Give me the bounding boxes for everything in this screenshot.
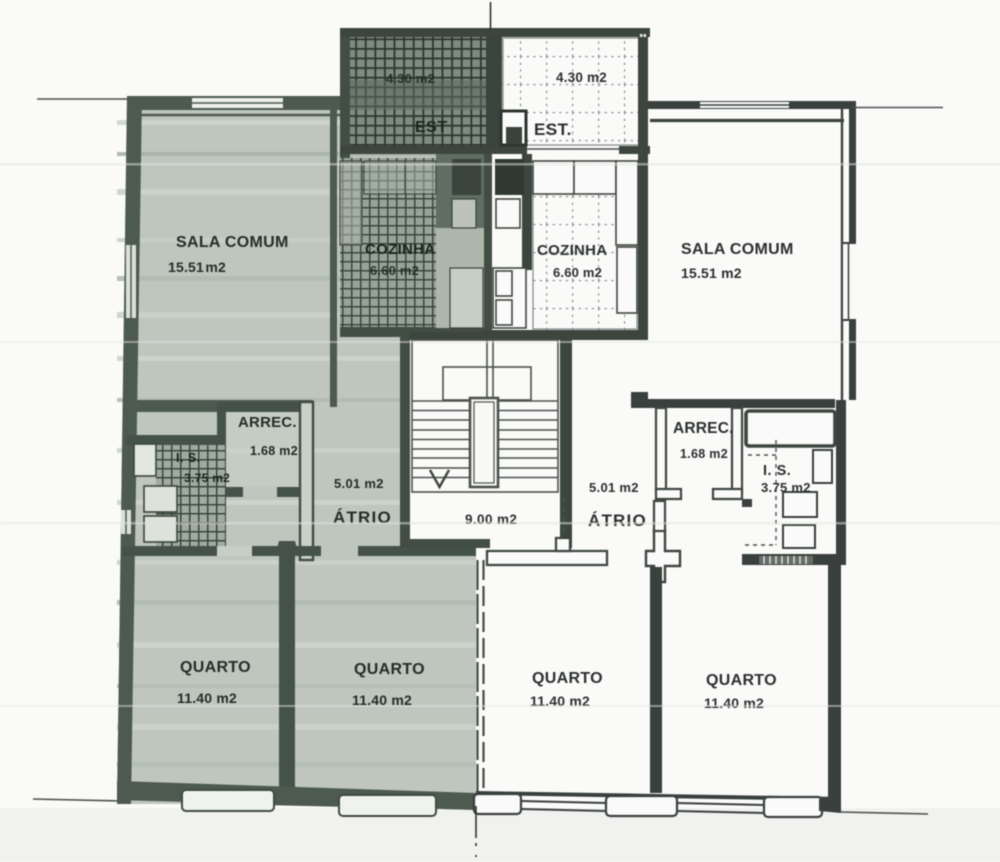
svg-text:EST.: EST. xyxy=(534,120,572,139)
svg-text:I. S.: I. S. xyxy=(763,463,791,479)
svg-text:ARREC.: ARREC. xyxy=(238,414,297,431)
svg-text:5.01 m2: 5.01 m2 xyxy=(589,480,639,495)
svg-text:EST: EST xyxy=(415,119,448,136)
svg-text:11.40 m2: 11.40 m2 xyxy=(704,695,764,711)
svg-text:9.00 m2: 9.00 m2 xyxy=(465,512,517,527)
svg-text:4.30 m2: 4.30 m2 xyxy=(386,71,435,86)
svg-text:QUARTO: QUARTO xyxy=(354,661,425,678)
svg-text:3.75 m2: 3.75 m2 xyxy=(761,480,811,495)
svg-text:COZINHA: COZINHA xyxy=(365,241,435,258)
svg-text:3.75 m2: 3.75 m2 xyxy=(184,471,230,485)
svg-text:6.60 m2: 6.60 m2 xyxy=(553,265,602,280)
svg-text:SALA COMUM: SALA COMUM xyxy=(681,241,794,258)
svg-text:ÁTRIO: ÁTRIO xyxy=(588,511,647,530)
svg-text:COZINHA: COZINHA xyxy=(537,242,607,259)
svg-text:SALA COMUM: SALA COMUM xyxy=(176,234,289,251)
svg-text:QUARTO: QUARTO xyxy=(706,672,777,689)
svg-text:15.51 m2: 15.51 m2 xyxy=(681,265,742,281)
svg-text:QUARTO: QUARTO xyxy=(532,670,603,687)
svg-text:5.01 m2: 5.01 m2 xyxy=(334,476,384,491)
svg-text:4.30 m2: 4.30 m2 xyxy=(556,70,607,85)
svg-text:1.68 m2: 1.68 m2 xyxy=(250,444,298,458)
svg-text:QUARTO: QUARTO xyxy=(180,659,251,676)
svg-text:6.60 m2: 6.60 m2 xyxy=(370,263,419,278)
svg-text:I. S.: I. S. xyxy=(176,451,201,465)
svg-text:11.40 m2: 11.40 m2 xyxy=(177,690,237,706)
svg-text:15.51 m2: 15.51 m2 xyxy=(168,259,226,275)
svg-text:1.68 m2: 1.68 m2 xyxy=(680,447,728,461)
svg-text:ARREC.: ARREC. xyxy=(673,420,734,437)
